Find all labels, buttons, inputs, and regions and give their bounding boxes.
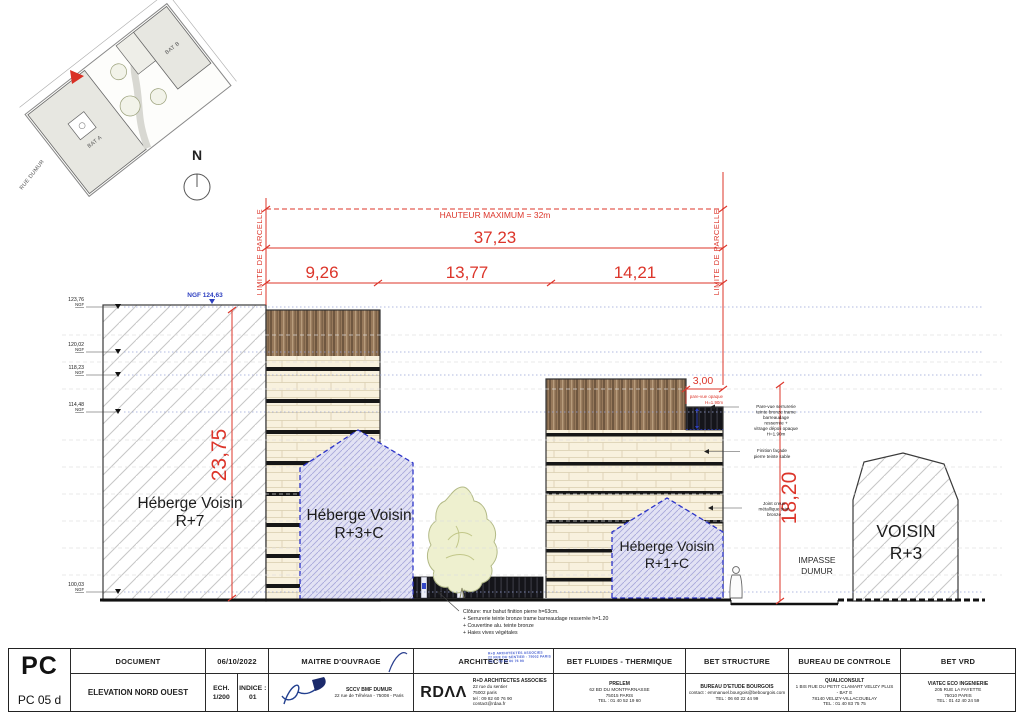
vrd-line: 205 RUE LA FAYETTE <box>928 687 988 693</box>
indice-box: INDICE : 01 <box>238 674 269 711</box>
bet-vrd-header: BET VRD <box>901 649 1015 674</box>
label-heberge-r1c-line2: R+1+C <box>645 555 689 571</box>
level-unit: NGF <box>75 587 84 592</box>
label-heberge-r1c-line1: Héberge Voisin <box>620 538 715 554</box>
annotation-line: + Serrurerie teinte bronze trame barreau… <box>463 616 608 622</box>
label-heberge-r3c-line1: Héberge Voisin <box>306 507 411 524</box>
annotation-line: teinte bronze trame <box>756 410 796 415</box>
annotation-line: vitrage dépoli opaque <box>754 426 798 431</box>
date: 06/10/2022 <box>206 649 269 674</box>
indice-label: INDICE : <box>239 685 266 692</box>
architecte-header: ARCHITECTE R+D ARCHITECTES ASSOCIES 22 R… <box>414 649 554 674</box>
label-heberge-r7-line2: R+7 <box>176 513 205 530</box>
bet-structure-header: BET STRUCTURE <box>686 649 789 674</box>
elevation-drawing: BAT A BAT B RUE DUMUR N <box>0 0 1024 648</box>
architectural-drawing-sheet: { "site_plan": { "bat_a": "BAT A", "bat_… <box>0 0 1024 718</box>
dim-total-width: 37,23 <box>474 228 517 247</box>
limite-parcelle-left: LIMITE DE PARCELLE <box>255 209 264 295</box>
annotation-line: métallique teint <box>759 507 791 512</box>
annotation-line: + Haies vives végétales <box>463 630 518 636</box>
street-label: RUE DUMUR <box>19 159 46 191</box>
neighbor-building-r7 <box>103 305 266 601</box>
limite-parcelle-right: LIMITE DE PARCELLE <box>712 209 721 295</box>
annotation-line: + Couvertine alu. teinte bronze <box>463 623 534 629</box>
dim-parevue-width: 3,00 <box>693 375 714 387</box>
fluides-line: TEL : 01 40 52 19 60 <box>589 698 649 704</box>
hauteur-max-label: HAUTEUR MAXIMUM = 32m <box>440 210 551 220</box>
annotation-line: barreaudage <box>763 415 789 420</box>
annotation-line: bronze <box>767 512 781 517</box>
bet-structure-cell: BUREAU D'ETUDE BOURGOIS contact : emmanu… <box>686 674 789 711</box>
dim-segment-3: 14,21 <box>614 263 657 282</box>
sheet-code-cell: PC PC 05 d <box>9 649 71 711</box>
label-impasse-line2: DUMUR <box>801 566 833 576</box>
moa-cell: SCCV BMF DUMUR 22 rue de Téhéran - 75008… <box>269 674 414 711</box>
annotation-line: pierre teinte sable <box>754 454 791 459</box>
scale-label: ECH. <box>213 685 229 692</box>
site-plan: BAT A BAT B RUE DUMUR <box>19 0 237 196</box>
bet-vrd-cell: VIATEC ECO INGENIERIE 205 RUE LA FAYETTE… <box>901 674 1015 711</box>
structure-line: contact : emmanuel.bourgois@bebourgois.c… <box>689 690 785 696</box>
title-block: PC PC 05 d DOCUMENT 06/10/2022 MAITRE D'… <box>8 648 1016 712</box>
scale-box: ECH. 1/200 <box>206 674 238 711</box>
annotation-line: H=1.90m <box>767 432 786 437</box>
architecte-cell: RDΛΛ R+D ARCHITECTES ASSOCIES 22 rue du … <box>414 674 554 711</box>
north-arrow: N <box>184 147 210 200</box>
label-voisin-line1: VOISIN <box>876 521 935 541</box>
document-title: ELEVATION NORD OUEST <box>71 674 206 711</box>
label-heberge-r3c-line2: R+3+C <box>334 525 383 542</box>
stamp-line: TEL : 09 82 60 76 90 <box>488 659 551 664</box>
bureau-controle-cell: QUALICONSULT 1 BIS RUE DU PETIT CLAMART … <box>789 674 901 711</box>
level-unit: NGF <box>75 407 84 412</box>
signature-stroke <box>385 649 411 673</box>
north-label: N <box>192 147 202 163</box>
indice-value: 01 <box>249 694 257 701</box>
rdaa-logo: RDΛΛ <box>420 684 466 702</box>
pare-vue-screen <box>686 407 723 430</box>
structure-line: TEL : 06 60 22 44 99 <box>689 696 785 702</box>
ngf-marker-icon <box>209 299 215 304</box>
person-figure <box>730 567 742 598</box>
sheet-number: PC 05 d <box>18 693 61 707</box>
annotation-line: resserrée + <box>764 421 788 426</box>
label-heberge-r7-line1: Héberge Voisin <box>137 495 242 512</box>
moa-address: 22 rue de Téhéran - 75008 - Paris <box>334 693 403 699</box>
dim-height-left: 23,75 <box>208 429 231 482</box>
architect-stamp: R+D ARCHITECTES ASSOCIES 22 RUE DU SENTI… <box>488 650 551 663</box>
bet-fluides-header: BET FLUIDES - THERMIQUE <box>554 649 686 674</box>
sheet-code: PC <box>21 652 58 681</box>
scale-indice-cell: ECH. 1/200 INDICE : 01 <box>206 674 269 711</box>
ngf-roof-level: NGF 124,63 <box>187 292 223 299</box>
dim-segment-1: 9,26 <box>305 263 338 282</box>
moa-header-label: MAITRE D'OUVRAGE <box>301 657 380 666</box>
level-unit: NGF <box>75 302 84 307</box>
controle-line: TEL : 01 40 83 75 75 <box>796 701 894 707</box>
scale-value: 1/200 <box>213 694 230 701</box>
level-unit: NGF <box>75 370 84 375</box>
level-marker: 123,76 NGF <box>68 297 121 309</box>
moa-header: MAITRE D'OUVRAGE <box>269 649 414 674</box>
annotation-line: Pare-vue serrurerie <box>756 404 796 409</box>
vrd-line: TEL : 01 42 40 24 59 <box>928 698 988 704</box>
label-voisin-line2: R+3 <box>890 543 923 563</box>
annotation-line: Joint creux <box>763 501 786 506</box>
fluides-line: 62 BD DU MONTPARNASSE <box>589 687 649 693</box>
bureau-controle-header: BUREAU DE CONTROLE <box>789 649 901 674</box>
structure-name: BUREAU D'ETUDE BOURGOIS <box>689 684 785 690</box>
architecte-line: contact@rdaa.fr <box>473 701 547 707</box>
dim-segment-2: 13,77 <box>446 263 489 282</box>
document-header: DOCUMENT <box>71 649 206 674</box>
ground-line <box>100 600 985 605</box>
signature <box>278 676 330 710</box>
parevue-note-1: pare-vue opaque <box>690 394 724 399</box>
annotation-line: Finition façade <box>757 448 787 453</box>
parevue-note-2: H=1.90m <box>705 400 723 405</box>
level-unit: NGF <box>75 347 84 352</box>
annotation-line: Clôture: mur bahut finition pierre h=63c… <box>463 609 559 615</box>
label-impasse-line1: IMPASSE <box>798 555 835 565</box>
bet-fluides-cell: PRELEM 62 BD DU MONTPARNASSE 75015 PARIS… <box>554 674 686 711</box>
tree <box>427 487 497 598</box>
dim-height-right: 18,20 <box>778 472 801 525</box>
